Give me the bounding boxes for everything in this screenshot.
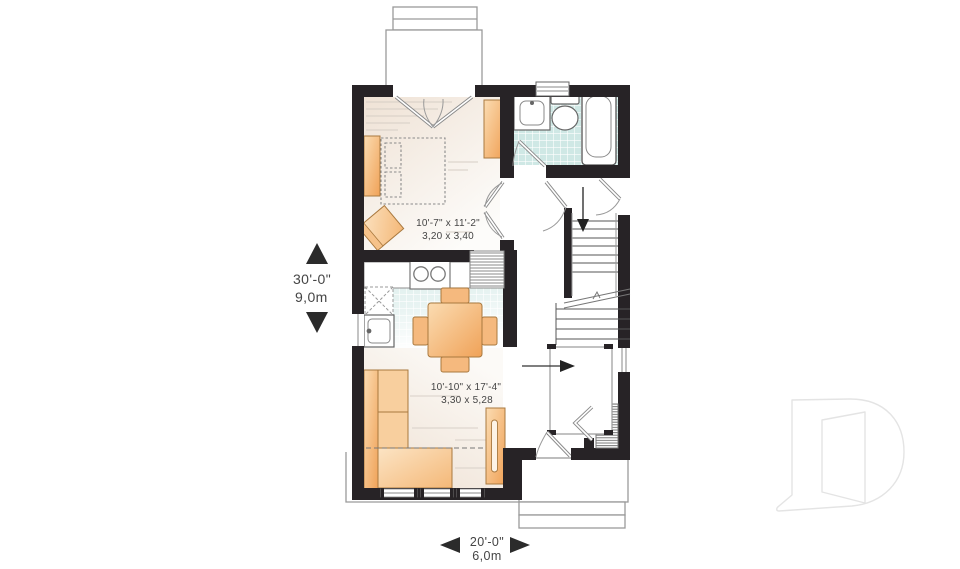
window-bath-icon (536, 82, 569, 96)
dining-chair-bottom (441, 357, 469, 372)
living-dims-metric: 3,30 x 5,28 (441, 395, 493, 406)
drummond-d-logo (777, 399, 904, 511)
down-arrow-icon (577, 187, 589, 232)
top-porch (386, 7, 482, 86)
height-metric: 9,0m (295, 289, 328, 305)
wall-bedroom-east-upper (500, 97, 514, 178)
height-imperial: 30'-0" (293, 271, 331, 287)
wall-bottom-right-b (571, 448, 630, 460)
wall-bathroom-south (546, 165, 618, 178)
arrow-down-icon (306, 312, 328, 333)
porch-deck-top (386, 30, 482, 86)
width-metric: 6,0m (472, 549, 501, 563)
stair-break-tick (593, 292, 600, 299)
window-kitchen-icon (352, 310, 364, 350)
side-door-icon (596, 179, 620, 215)
dining-chair-right (482, 317, 497, 345)
floor-plan-page: 30'-0" 9,0m 20'-0" 6,0m 10'-7" x 11'-2" … (0, 0, 960, 569)
floor-plan-canvas: 30'-0" 9,0m 20'-0" 6,0m 10'-7" x 11'-2" … (0, 0, 960, 569)
window-living-2-icon (421, 488, 453, 498)
bedroom-dims-metric: 3,20 x 3,40 (422, 231, 474, 242)
wall-right-mid (618, 215, 630, 347)
dining-chair-top (441, 288, 469, 303)
entry-porch (519, 458, 628, 528)
entry-door-icon (536, 432, 570, 457)
window-landing-icon (618, 344, 630, 376)
stair-treads-upper (572, 221, 618, 272)
width-imperial: 20'-0" (470, 535, 504, 549)
porch-deck-entry (519, 458, 628, 502)
bedroom-dims-imperial: 10'-7" x 11'-2" (416, 218, 480, 229)
wall-living-east (503, 250, 517, 347)
stair-landing (547, 344, 613, 435)
kitchen-sink-icon (364, 315, 394, 347)
living-dims-imperial: 10'-10" x 17'-4" (431, 382, 502, 393)
wall-stair-west (564, 208, 572, 298)
wall-corner-chunk (503, 448, 522, 500)
width-dimension: 20'-0" 6,0m (440, 535, 530, 563)
height-dimension: 30'-0" 9,0m (293, 243, 331, 333)
wall-bedroom-south (352, 250, 474, 262)
pantry-dashed-box (365, 287, 393, 315)
window-living-1-icon (381, 488, 417, 498)
stove-icon (410, 260, 450, 289)
tv-unit-icon (486, 408, 505, 484)
toilet-icon (551, 93, 579, 130)
door-opening-top (393, 85, 475, 97)
wall-left (352, 97, 364, 500)
dresser-icon (364, 136, 380, 196)
wall-closet-stub-bottom (584, 438, 594, 460)
arrow-left-icon (440, 537, 460, 553)
wall-right-upper (618, 97, 630, 178)
dining-chair-left (413, 317, 428, 345)
porch-step-1 (519, 502, 625, 515)
window-living-3-icon (457, 488, 484, 498)
arrow-right-icon (510, 537, 530, 553)
dining-table-top (428, 303, 482, 357)
wall-right-lower (618, 373, 630, 460)
stairs-icon (522, 187, 630, 435)
arrow-up-icon (306, 243, 328, 264)
hall-door-icon (543, 182, 566, 231)
bathtub-icon (582, 91, 616, 165)
porch-step-2 (519, 515, 625, 528)
fridge-icon (470, 251, 504, 288)
vanity-sink-icon (514, 96, 550, 130)
